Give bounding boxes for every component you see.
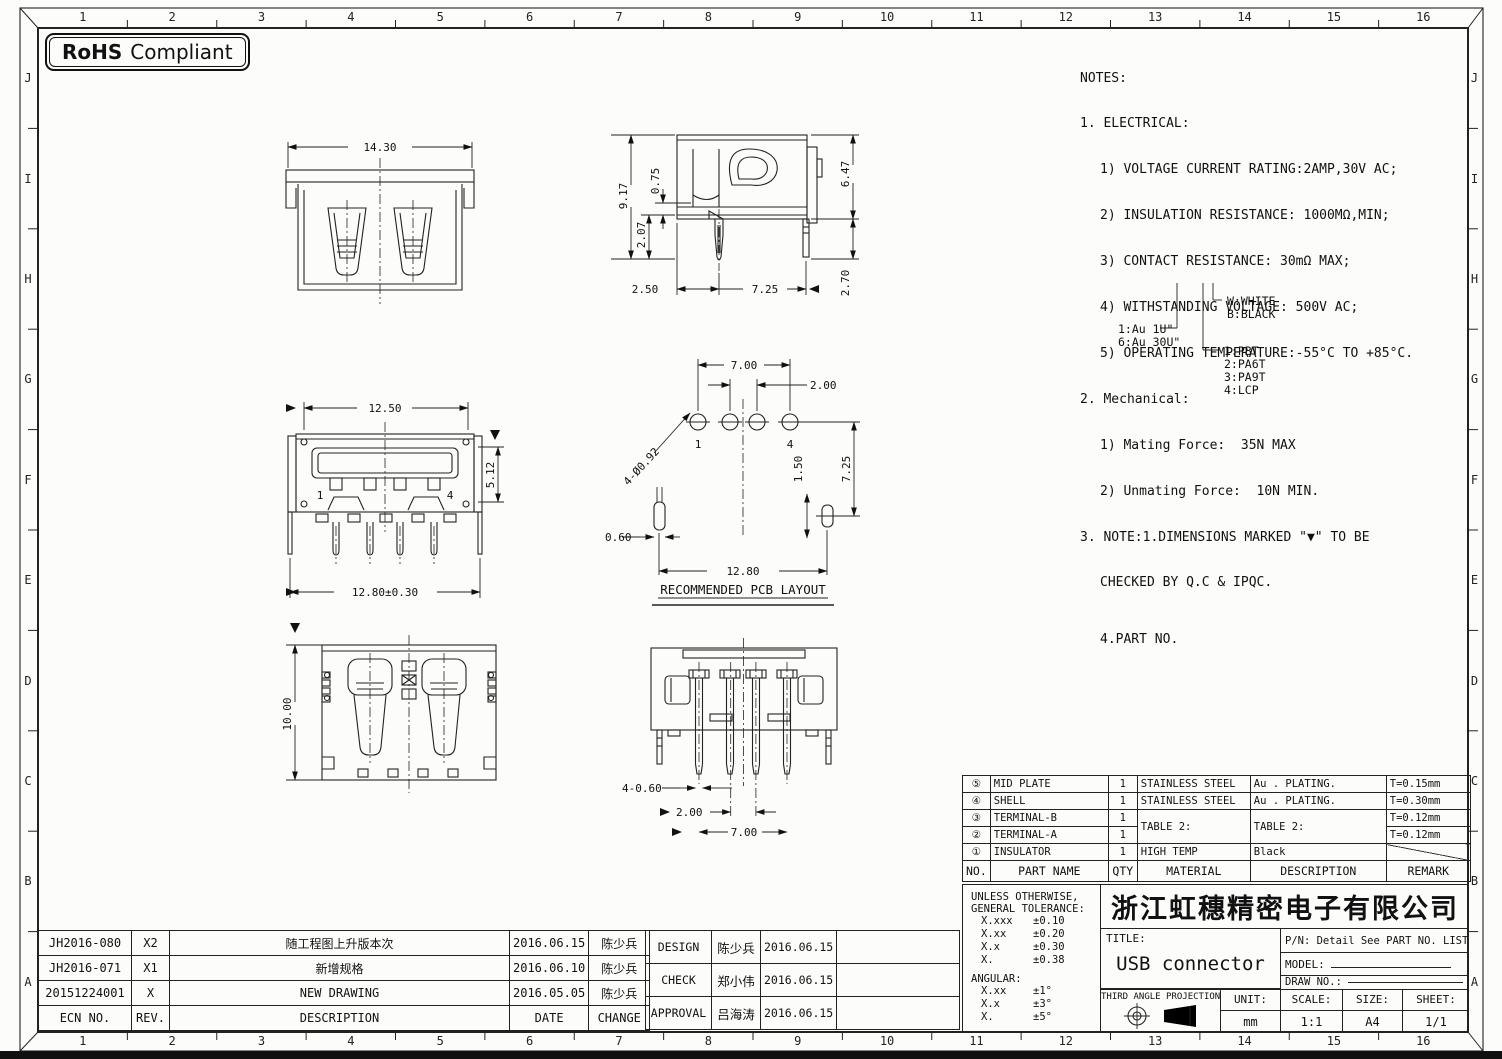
- grid-label: D: [19, 630, 37, 730]
- grid-label: 16: [1379, 1031, 1468, 1051]
- rev-change: 陈少兵: [589, 956, 650, 981]
- tol-val: ±1°: [1033, 985, 1052, 998]
- grid-label: 10: [842, 1031, 931, 1051]
- dim-pcb-holes: 4-Ø0.92: [621, 445, 662, 488]
- col-rev: REV.: [132, 1006, 170, 1031]
- projection-label: THIRD ANGLE PROJECTION: [1101, 992, 1220, 1002]
- part-remark: T=0.15mm: [1386, 776, 1470, 793]
- dim-bottom-200: 2.00: [676, 806, 703, 819]
- model-row: MODEL:: [1281, 953, 1469, 976]
- rohs-bold: RoHS: [62, 40, 122, 64]
- part-no: ①: [963, 844, 991, 861]
- grid-label: 3: [217, 7, 306, 27]
- part-description: Au . PLATING.: [1250, 793, 1386, 810]
- grid-label: C: [19, 731, 37, 831]
- grid-label: 6: [485, 1031, 574, 1051]
- grid-label: H: [19, 229, 37, 329]
- rev-description: 随工程图上升版本次: [170, 931, 510, 956]
- size-value: A4: [1343, 1011, 1402, 1034]
- part-number-row: P/N: Detail See PART NO. LIST: [1281, 929, 1469, 953]
- grid-label: 1: [38, 1031, 127, 1051]
- tol-val: ±0.38: [1033, 954, 1065, 967]
- part-material: STAINLESS STEEL: [1137, 776, 1250, 793]
- title-label: TITLE:: [1106, 932, 1146, 945]
- drawing-title: USB connector: [1101, 953, 1280, 975]
- unit-cell: UNIT: mm: [1221, 989, 1281, 1033]
- grid-label: 12: [1021, 7, 1110, 27]
- rev-ecn: 20151224001: [39, 981, 132, 1006]
- col-date: DATE: [510, 1006, 589, 1031]
- table-row: JH2016-071 X1 新增规格 2016.06.10 陈少兵: [39, 956, 650, 981]
- tolerance-header: UNLESS OTHERWISE,: [971, 891, 1100, 903]
- parts-table-header: NO. PART NAME QTY MATERIAL DESCRIPTION R…: [963, 861, 1471, 882]
- grid-label: 10: [842, 7, 931, 27]
- inspection-triangle: [290, 623, 300, 633]
- grid-top: 12345678910111213141516: [38, 7, 1468, 27]
- rev-date: 2016.06.10: [510, 956, 589, 981]
- col-description: DESCRIPTION: [170, 1006, 510, 1031]
- unit-value: mm: [1221, 1011, 1280, 1034]
- part-qty: 1: [1108, 844, 1137, 861]
- note-line: 3. NOTE:1.DIMENSIONS MARKED "▼" TO BE: [1080, 530, 1452, 545]
- tolerance-block: UNLESS OTHERWISE, GENERAL TOLERANCE: X.x…: [963, 885, 1101, 1033]
- title-cell: TITLE: USB connector: [1101, 929, 1281, 989]
- grid-label: F: [1467, 430, 1482, 530]
- dim-side-207: 2.07: [635, 222, 648, 249]
- grid-label: 13: [1111, 7, 1200, 27]
- dim-front-top: 12.50: [368, 402, 401, 415]
- rohs-badge: RoHSCompliant: [45, 33, 250, 71]
- dim-side-250: 2.50: [632, 283, 659, 296]
- part-remark: T=0.12mm: [1386, 810, 1470, 827]
- part-name: TERMINAL-B: [990, 810, 1108, 827]
- pin1-label: 1: [317, 489, 324, 502]
- grid-label: 11: [932, 1031, 1021, 1051]
- dim-pcb-150: 1.50: [792, 456, 805, 483]
- part-qty: 1: [1108, 810, 1137, 827]
- rev-date: 2016.06.15: [510, 931, 589, 956]
- drawing-sheet: 12345678910111213141516 1234567891011121…: [0, 0, 1502, 1059]
- rev-date: 2016.05.05: [510, 981, 589, 1006]
- col-material: MATERIAL: [1137, 861, 1250, 882]
- part-no: ②: [963, 827, 991, 844]
- approval-name: 郑小伟: [712, 964, 761, 997]
- grid-label: J: [19, 28, 37, 128]
- revision-table-header: ECN NO. REV. DESCRIPTION DATE CHANGE: [39, 1006, 650, 1031]
- part-material: TABLE 2:: [1137, 810, 1250, 844]
- rear-view: 14.30: [270, 118, 490, 313]
- dim-side-270: 2.70: [839, 270, 852, 297]
- pin-2: [720, 670, 740, 774]
- tol-val: ±3°: [1033, 998, 1052, 1011]
- revision-table: JH2016-080 X2 随工程图上升版本次 2016.06.15 陈少兵 J…: [38, 930, 650, 1031]
- note-line: 2) INSULATION RESISTANCE: 1000MΩ,MIN;: [1080, 208, 1452, 223]
- grid-label: 15: [1289, 1031, 1378, 1051]
- grid-label: 6: [485, 7, 574, 27]
- grid-left: JIHGFEDCBA: [19, 28, 37, 1032]
- grid-label: I: [1467, 128, 1482, 228]
- tol-val: ±0.30: [1033, 941, 1065, 954]
- bottom-view: 4-0.60 2.00 7.00: [610, 634, 885, 839]
- part-name: INSULATOR: [990, 844, 1108, 861]
- grid-label: 4: [306, 7, 395, 27]
- part-no: ⑤: [963, 776, 991, 793]
- dim-pcb-1280: 12.80: [726, 565, 759, 578]
- col-remark: REMARK: [1386, 861, 1470, 882]
- angular-header: ANGULAR:: [971, 973, 1100, 985]
- grid-label: 2: [127, 7, 216, 27]
- grid-label: 8: [664, 7, 753, 27]
- part-qty: 1: [1108, 793, 1137, 810]
- table-row: CHECK 郑小伟 2016.06.15: [646, 964, 960, 997]
- draw-no-row: DRAW NO.:: [1281, 976, 1469, 989]
- dim-pcb-700: 7.00: [731, 359, 758, 372]
- title-block: UNLESS OTHERWISE, GENERAL TOLERANCE: X.x…: [962, 884, 1468, 1032]
- approval-table: DESIGN 陈少兵 2016.06.15 CHECK 郑小伟 2016.06.…: [645, 930, 960, 1030]
- scale-value: 1:1: [1281, 1011, 1342, 1034]
- legend-plating-2: 6:Au 30U": [1118, 335, 1180, 349]
- part-description: Au . PLATING.: [1250, 776, 1386, 793]
- dim-front-bottom: 12.80±0.30: [352, 586, 418, 599]
- pcb-pin1-label: 1: [695, 438, 702, 451]
- tol-key: X.x: [971, 998, 1033, 1011]
- legend-material-4: 4:LCP: [1224, 383, 1259, 397]
- unit-label: UNIT:: [1221, 990, 1280, 1011]
- inspection-triangle: [286, 404, 296, 412]
- table-row: ④ SHELL 1 STAINLESS STEEL Au . PLATING. …: [963, 793, 1471, 810]
- grid-label: G: [1467, 329, 1482, 429]
- dim-side-917: 9.17: [617, 183, 630, 210]
- dim-side-075: 0.75: [649, 168, 662, 195]
- rev-description: NEW DRAWING: [170, 981, 510, 1006]
- grid-label: 4: [306, 1031, 395, 1051]
- sheet-label: SHEET:: [1403, 990, 1469, 1011]
- dim-pcb-725: 7.25: [840, 456, 853, 483]
- pcb-pin4-label: 4: [787, 438, 794, 451]
- tol-key: X.x: [971, 941, 1033, 954]
- col-no: NO.: [963, 861, 991, 882]
- tol-key: X.: [971, 954, 1033, 967]
- grid-label: F: [19, 430, 37, 530]
- approval-role: DESIGN: [646, 931, 712, 964]
- legend-material-2: 2:PA6T: [1224, 357, 1266, 371]
- approval-name: 陈少兵: [712, 931, 761, 964]
- table-row: ⑤ MID PLATE 1 STAINLESS STEEL Au . PLATI…: [963, 776, 1471, 793]
- grid-label: H: [1467, 229, 1482, 329]
- part-qty: 1: [1108, 776, 1137, 793]
- third-angle-projection-icon: [1102, 1002, 1220, 1030]
- grid-label: B: [19, 831, 37, 931]
- dim-side-647: 6.47: [839, 161, 852, 188]
- grid-label: 2: [127, 1031, 216, 1051]
- company-name: 浙江虹穗精密电子有限公司: [1101, 885, 1469, 929]
- rev-rev: X: [132, 981, 170, 1006]
- dim-rear-width: 14.30: [363, 141, 396, 154]
- grid-label: J: [1467, 28, 1482, 128]
- part-material: STAINLESS STEEL: [1137, 793, 1250, 810]
- grid-label: 7: [574, 7, 663, 27]
- rev-description: 新增规格: [170, 956, 510, 981]
- inspection-triangle: [660, 808, 670, 816]
- table-row: 20151224001 X NEW DRAWING 2016.05.05 陈少兵: [39, 981, 650, 1006]
- top-view: 10.00: [274, 617, 519, 802]
- grid-label: 13: [1111, 1031, 1200, 1051]
- part-name: MID PLATE: [990, 776, 1108, 793]
- grid-label: 5: [396, 7, 485, 27]
- scale-label: SCALE:: [1281, 990, 1342, 1011]
- part-qty: 1: [1108, 827, 1137, 844]
- notes-title: NOTES:: [1080, 71, 1452, 86]
- pin4-label: 4: [447, 489, 454, 502]
- grid-label: D: [1467, 630, 1482, 730]
- grid-label: A: [19, 932, 37, 1032]
- rev-change: 陈少兵: [589, 931, 650, 956]
- tol-val: ±0.10: [1033, 915, 1065, 928]
- part-no: ③: [963, 810, 991, 827]
- part-description: Black: [1250, 844, 1386, 861]
- approval-name: 吕海涛: [712, 997, 761, 1030]
- size-label: SIZE:: [1343, 990, 1402, 1011]
- col-ecn: ECN NO.: [39, 1006, 132, 1031]
- inspection-triangle: [672, 828, 682, 836]
- note-line: CHECKED BY Q.C & IPQC.: [1080, 575, 1452, 590]
- legend-color-1: W:WHITE: [1227, 294, 1275, 308]
- pcb-layout-title: RECOMMENDED PCB LAYOUT: [660, 582, 826, 597]
- rev-rev: X2: [132, 931, 170, 956]
- col-part-name: PART NAME: [990, 861, 1108, 882]
- inspection-triangle: [490, 430, 500, 440]
- table-row: JH2016-080 X2 随工程图上升版本次 2016.06.15 陈少兵: [39, 931, 650, 956]
- grid-label: 9: [753, 1031, 842, 1051]
- note-line: 1) Mating Force: 35N MAX: [1080, 438, 1452, 453]
- scale-cell: SCALE: 1:1: [1281, 989, 1343, 1033]
- rohs-rest: Compliant: [130, 40, 232, 64]
- note-line: 3) CONTACT RESISTANCE: 30mΩ MAX;: [1080, 254, 1452, 269]
- table-row: DESIGN 陈少兵 2016.06.15: [646, 931, 960, 964]
- grid-bottom: 12345678910111213141516: [38, 1031, 1468, 1051]
- grid-label: A: [1467, 932, 1482, 1032]
- part-description: TABLE 2:: [1250, 810, 1386, 844]
- grid-label: 16: [1379, 7, 1468, 27]
- note-line: 4.PART NO.: [1080, 632, 1452, 647]
- tol-key: X.xxx: [971, 915, 1033, 928]
- tol-val: ±5°: [1033, 1011, 1052, 1024]
- legend-material-3: 3:PA9T: [1224, 370, 1266, 384]
- approval-date: 2016.06.15: [761, 931, 837, 964]
- grid-label: 3: [217, 1031, 306, 1051]
- col-description: DESCRIPTION: [1250, 861, 1386, 882]
- side-view: 9.17 2.07 0.75 6.47 2.70 2.50 7.25: [597, 107, 887, 319]
- note-line: 1) VOLTAGE CURRENT RATING:2AMP,30V AC;: [1080, 162, 1452, 177]
- grid-label: 14: [1200, 1031, 1289, 1051]
- grid-label: E: [19, 530, 37, 630]
- approval-date: 2016.06.15: [761, 997, 837, 1030]
- rev-ecn: JH2016-071: [39, 956, 132, 981]
- pcb-layout-view: 1 4 7.00 2.00 4-Ø0.92 1.50 7.25 0.60: [602, 347, 892, 609]
- dim-pcb-200: 2.00: [810, 379, 837, 392]
- grid-label: 9: [753, 7, 842, 27]
- approval-empty: [837, 997, 960, 1030]
- grid-label: 15: [1289, 7, 1378, 27]
- page-edge-shadow: [0, 1051, 1502, 1059]
- dim-bottom-460: 4-0.60: [622, 782, 662, 795]
- grid-label: I: [19, 128, 37, 228]
- tol-val: ±0.20: [1033, 928, 1065, 941]
- col-qty: QTY: [1108, 861, 1137, 882]
- table-row: ① INSULATOR 1 HIGH TEMP Black: [963, 844, 1471, 861]
- legend-plating-1: 1:Au 1U": [1118, 322, 1173, 336]
- rev-ecn: JH2016-080: [39, 931, 132, 956]
- approval-empty: [837, 964, 960, 997]
- approval-role: APPROVAL: [646, 997, 712, 1030]
- tol-key: X.xx: [971, 985, 1033, 998]
- size-cell: SIZE: A4: [1343, 989, 1403, 1033]
- draw-no-label: DRAW NO.:: [1285, 976, 1342, 989]
- inspection-triangle: [809, 285, 819, 293]
- dim-bottom-700: 7.00: [731, 826, 758, 839]
- part-remark: T=0.30mm: [1386, 793, 1470, 810]
- part-name: SHELL: [990, 793, 1108, 810]
- dim-top-height: 10.00: [281, 697, 294, 730]
- dim-front-right: 5.12: [484, 462, 497, 489]
- sheet-cell: SHEET: 1/1: [1403, 989, 1469, 1033]
- notes-electrical-header: 1. ELECTRICAL:: [1080, 116, 1452, 131]
- tol-key: X.: [971, 1011, 1033, 1024]
- sheet-value: 1/1: [1403, 1011, 1469, 1034]
- col-change: CHANGE: [589, 1006, 650, 1031]
- grid-label: 7: [574, 1031, 663, 1051]
- grid-label: 12: [1021, 1031, 1110, 1051]
- grid-label: G: [19, 329, 37, 429]
- dim-side-725: 7.25: [752, 283, 779, 296]
- tolerance-header2: GENERAL TOLERANCE:: [971, 903, 1100, 915]
- tol-key: X.xx: [971, 928, 1033, 941]
- approval-date: 2016.06.15: [761, 964, 837, 997]
- part-no: ④: [963, 793, 991, 810]
- rev-rev: X1: [132, 956, 170, 981]
- part-remark: T=0.12mm: [1386, 827, 1470, 844]
- part-remark-diagonal: [1386, 844, 1470, 861]
- grid-label: E: [1467, 530, 1482, 630]
- grid-label: 5: [396, 1031, 485, 1051]
- grid-label: 8: [664, 1031, 753, 1051]
- model-label: MODEL:: [1285, 958, 1325, 971]
- dim-pcb-060: 0.60: [605, 531, 632, 544]
- table-row: APPROVAL 吕海涛 2016.06.15: [646, 997, 960, 1030]
- note-line: 2) Unmating Force: 10N MIN.: [1080, 484, 1452, 499]
- parts-table: ⑤ MID PLATE 1 STAINLESS STEEL Au . PLATI…: [962, 775, 1471, 882]
- grid-label: 14: [1200, 7, 1289, 27]
- table-row: ③ TERMINAL-B 1 TABLE 2: TABLE 2: T=0.12m…: [963, 810, 1471, 827]
- approval-empty: [837, 931, 960, 964]
- part-name: TERMINAL-A: [990, 827, 1108, 844]
- rev-change: 陈少兵: [589, 981, 650, 1006]
- grid-label: 1: [38, 7, 127, 27]
- projection-cell: THIRD ANGLE PROJECTION: [1101, 989, 1221, 1033]
- approval-role: CHECK: [646, 964, 712, 997]
- legend-material-1: 1:PBT: [1224, 344, 1259, 358]
- part-material: HIGH TEMP: [1137, 844, 1250, 861]
- legend-color-2: B:BLACK: [1227, 307, 1275, 321]
- front-view: 12.50 1 4 5.12 12.80±0.30: [272, 392, 512, 617]
- grid-label: 11: [932, 7, 1021, 27]
